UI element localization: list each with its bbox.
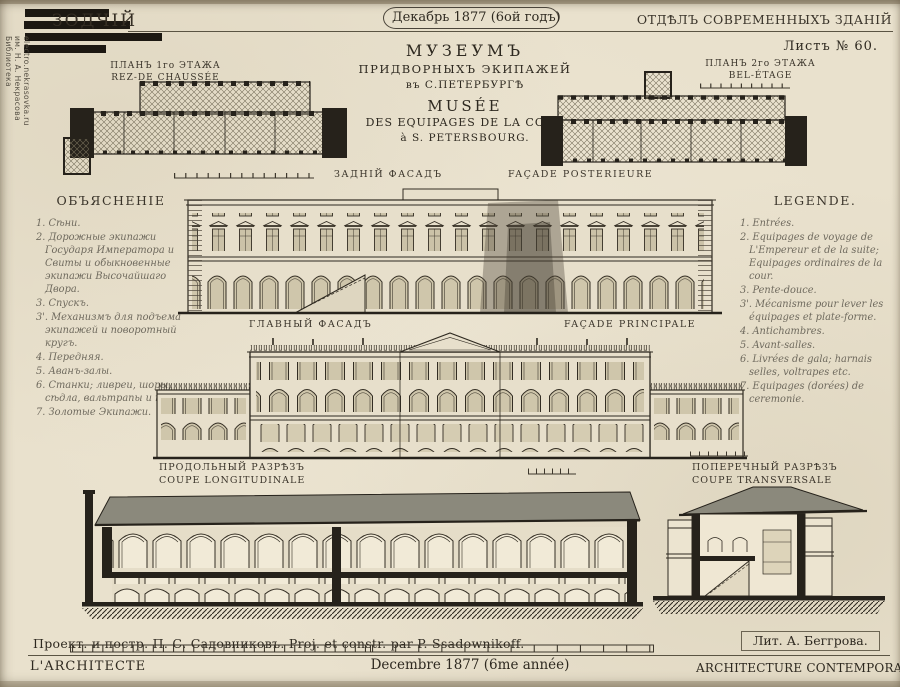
footer-issue-date: Decembre 1877 (6me année) <box>360 657 580 673</box>
footer-section-name: ARCHITECTURE CONTEMPORAINE <box>696 661 900 675</box>
library-stamp-line: electro.nekrasovka.ru <box>22 36 31 202</box>
back-facade-drawing <box>178 183 722 317</box>
scan-edge-top <box>0 0 900 4</box>
header-rule <box>128 31 893 32</box>
title-ru-1: МУЗЕУМЪ <box>330 42 600 60</box>
legend-item: 5. Avant-salles. <box>740 339 890 352</box>
legend-item: 1. Сѣни. <box>36 217 186 230</box>
legend-french: LEGENDE. 1. Entrées. 2. Equipages de voy… <box>740 193 890 407</box>
main-facade-label-ru: ГЛАВНЫЙ ФАСАДЪ <box>249 319 372 330</box>
scan-edge-bottom <box>0 681 900 687</box>
library-stamp-line: им. Н. А. Некрасова <box>13 36 22 202</box>
main-facade-label-fr: FAÇADE PRINCIPALE <box>564 319 696 330</box>
section-scale-bar <box>528 465 576 479</box>
transverse-section-drawing <box>653 482 885 620</box>
lithographer-credit: Лит. А. Беггрова. <box>741 631 880 651</box>
ground-floor-plan-drawing <box>62 74 357 186</box>
legend-russian-title: ОБЪЯСНЕНІЕ <box>36 193 186 208</box>
legend-item: 6. Livrées de gala; harnais selles, volt… <box>740 353 890 379</box>
cross-section-label-ru: ПОПЕРЕЧНЫЙ РАЗРѢЗЪ <box>692 462 838 475</box>
long-section-label-ru: ПРОДОЛЬНЫЙ РАЗРѢЗЪ <box>159 462 305 475</box>
legend-item: 3. Pente-douce. <box>740 284 890 297</box>
plan-ground-floor-label-ru: ПЛАНЪ 1го ЭТАЖА <box>98 61 233 73</box>
longitudinal-section-drawing <box>82 484 647 620</box>
legend-item: 3. Спускъ. <box>36 297 186 310</box>
legend-item: 2. Дорожные экипажи Государя Императора … <box>36 231 186 296</box>
footer-journal-name: L'ARCHITECTE <box>30 659 146 674</box>
lithograph-plate: ЗОДЧІЙ Декабрь 1877 (6ой годъ) ОТДѢЛЪ СО… <box>0 0 900 687</box>
library-stamp-text: electro.nekrasovka.ru им. Н. А. Некрасов… <box>4 36 31 202</box>
sheet-number: Листъ № 60. <box>784 39 879 54</box>
issue-date-box: Декабрь 1877 (6ой годъ) <box>383 7 559 29</box>
section-title: ОТДѢЛЪ СОВРЕМЕННЫХЪ ЗДАНІЙ <box>637 12 892 27</box>
main-facade-drawing <box>153 330 747 463</box>
back-facade-label-fr: FAÇADE POSTERIEURE <box>508 169 653 180</box>
legend-item: 4. Antichambres. <box>740 325 890 338</box>
legend-french-title: LEGENDE. <box>740 193 890 208</box>
facade-scale-bar <box>690 449 748 459</box>
legend-item: 3'. Mécanisme pour lever les équipages e… <box>740 298 890 324</box>
library-stamp-bar <box>24 45 106 53</box>
journal-masthead: ЗОДЧІЙ <box>52 11 137 31</box>
back-facade-label-ru: ЗАДНІЙ ФАСАДЪ <box>334 169 443 180</box>
plate-scale-bar <box>70 643 655 655</box>
legend-item: 1. Entrées. <box>740 217 890 230</box>
footer-rule <box>28 655 890 656</box>
library-stamp-line: Библиотека <box>4 36 13 202</box>
legend-item: 2. Equipages de voyage de L'Empereur et … <box>740 231 890 283</box>
bel-etage-plan-drawing <box>533 68 813 176</box>
legend-item: 7. Equipages (dorées) de ceremonie. <box>740 380 890 406</box>
library-stamp-bar <box>25 33 162 41</box>
